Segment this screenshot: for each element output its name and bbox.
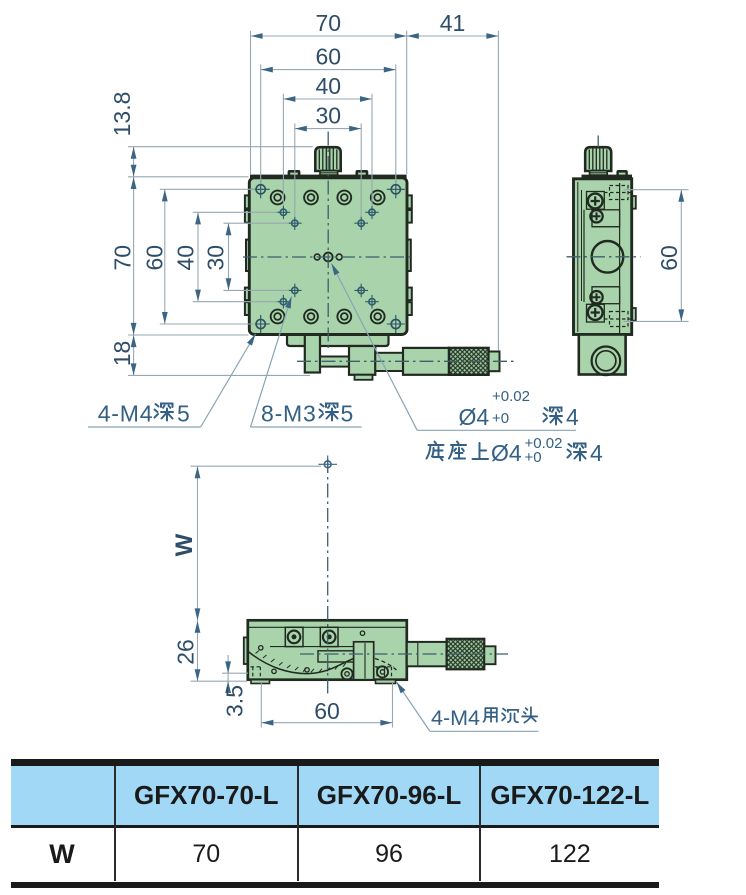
- svg-text:40: 40: [173, 245, 199, 271]
- svg-text:4-M4: 4-M4: [98, 401, 154, 427]
- svg-text:+0: +0: [525, 449, 542, 466]
- svg-text:70: 70: [316, 10, 342, 36]
- svg-text:41: 41: [440, 10, 466, 36]
- svg-text:Ø4: Ø4: [491, 440, 522, 466]
- svg-text:Ø4: Ø4: [459, 404, 490, 430]
- svg-text:26: 26: [173, 639, 199, 665]
- svg-text:4: 4: [566, 404, 579, 430]
- svg-text:60: 60: [142, 245, 168, 271]
- svg-text:5: 5: [177, 401, 190, 427]
- svg-text:+0.02: +0.02: [492, 388, 530, 405]
- svg-text:4: 4: [590, 440, 603, 466]
- svg-text:8-M3: 8-M3: [261, 401, 317, 427]
- svg-text:+0: +0: [492, 410, 509, 427]
- svg-text:18: 18: [109, 341, 135, 367]
- svg-text:13.8: 13.8: [109, 92, 135, 137]
- svg-text:4-M4: 4-M4: [431, 706, 480, 730]
- svg-text:70: 70: [110, 245, 136, 271]
- svg-text:3.5: 3.5: [222, 685, 248, 717]
- svg-text:5: 5: [341, 401, 354, 427]
- svg-text:60: 60: [316, 44, 342, 70]
- svg-text:60: 60: [314, 698, 340, 724]
- svg-text:W: W: [171, 533, 198, 556]
- svg-text:30: 30: [203, 245, 229, 271]
- svg-text:40: 40: [316, 73, 342, 99]
- svg-text:30: 30: [316, 103, 342, 129]
- svg-text:60: 60: [656, 245, 682, 271]
